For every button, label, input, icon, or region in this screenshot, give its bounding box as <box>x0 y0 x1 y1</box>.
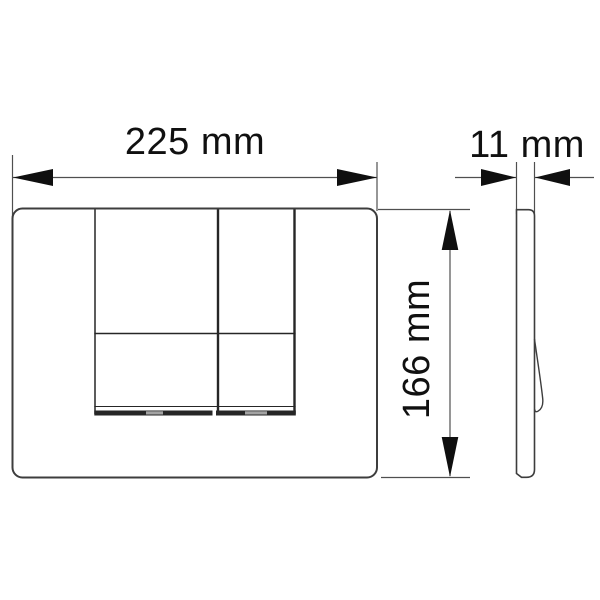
width-dimension-label: 225 mm <box>125 123 265 161</box>
arrow-width-right <box>337 169 377 186</box>
arrow-height-up <box>442 210 459 250</box>
height-dimension-label: 166 mm <box>398 279 436 419</box>
arrow-width-left <box>13 169 53 186</box>
drawing-svg <box>0 0 600 600</box>
side-profile-outline <box>517 210 535 478</box>
flush-plate-dimension-drawing: 225 mm 11 mm 166 mm <box>0 0 600 600</box>
arrow-depth-left <box>481 169 516 186</box>
arrow-depth-right <box>535 169 570 186</box>
button-band-gap <box>213 411 217 416</box>
notch-right-button <box>245 411 267 414</box>
depth-dimension-label: 11 mm <box>469 126 585 164</box>
arrow-height-down <box>442 437 459 477</box>
plate-outline <box>13 209 378 478</box>
side-view <box>517 210 543 478</box>
front-view <box>13 209 378 478</box>
notch-left-button <box>146 411 163 414</box>
side-clip-hook <box>535 339 543 412</box>
